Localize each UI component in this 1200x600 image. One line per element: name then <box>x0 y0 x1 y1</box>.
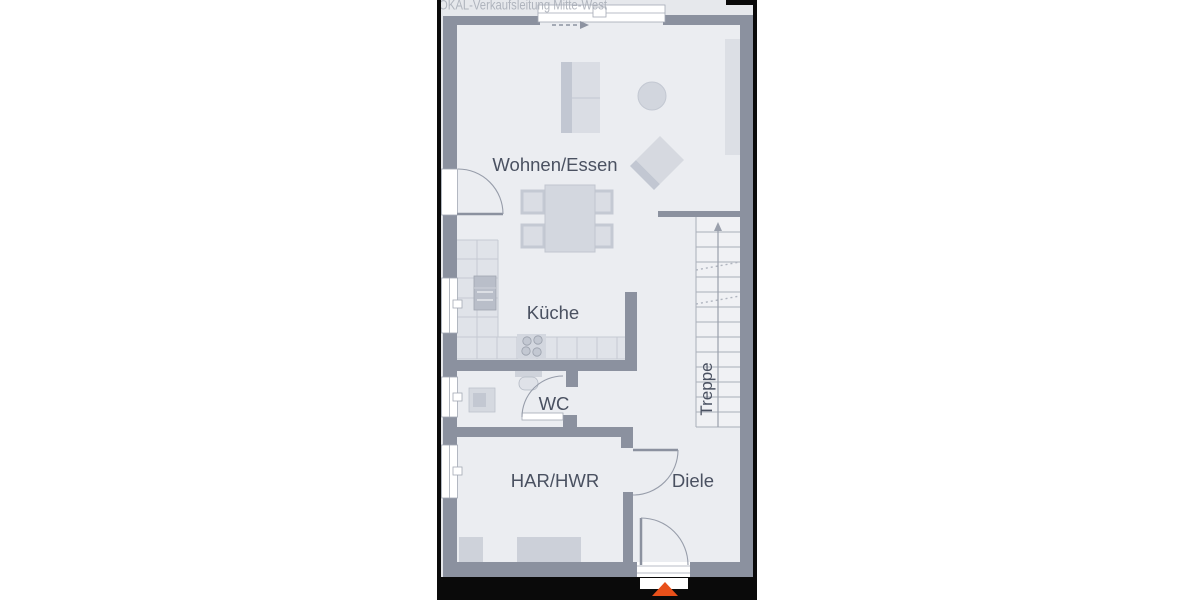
dining-table <box>545 185 595 252</box>
floorplan-svg: Treppe <box>437 0 757 600</box>
floorplan-photo: Treppe <box>437 0 757 600</box>
label-kueche: Küche <box>527 302 579 323</box>
washer <box>459 537 483 562</box>
utility-appliances <box>459 537 581 562</box>
dining-chair <box>522 191 544 213</box>
watermark-text: OKAL-Verkaufsleitung Mitte-West <box>439 0 607 13</box>
oven <box>474 276 496 310</box>
coffee-table <box>638 82 666 110</box>
stove <box>517 334 546 358</box>
stairs: Treppe <box>696 217 740 427</box>
label-wohnen-essen: Wohnen/Essen <box>492 154 617 175</box>
label-treppe: Treppe <box>697 362 716 415</box>
window-handle <box>453 300 462 308</box>
label-diele: Diele <box>672 470 714 491</box>
label-wc: WC <box>539 393 570 414</box>
dryer <box>517 537 581 562</box>
sideboard <box>725 39 740 155</box>
window-handle <box>453 467 462 475</box>
washbasin <box>469 388 495 412</box>
window-handle <box>453 393 462 401</box>
label-har-hwr: HAR/HWR <box>511 470 599 491</box>
dining-chair <box>522 225 544 247</box>
sofa <box>561 62 600 133</box>
